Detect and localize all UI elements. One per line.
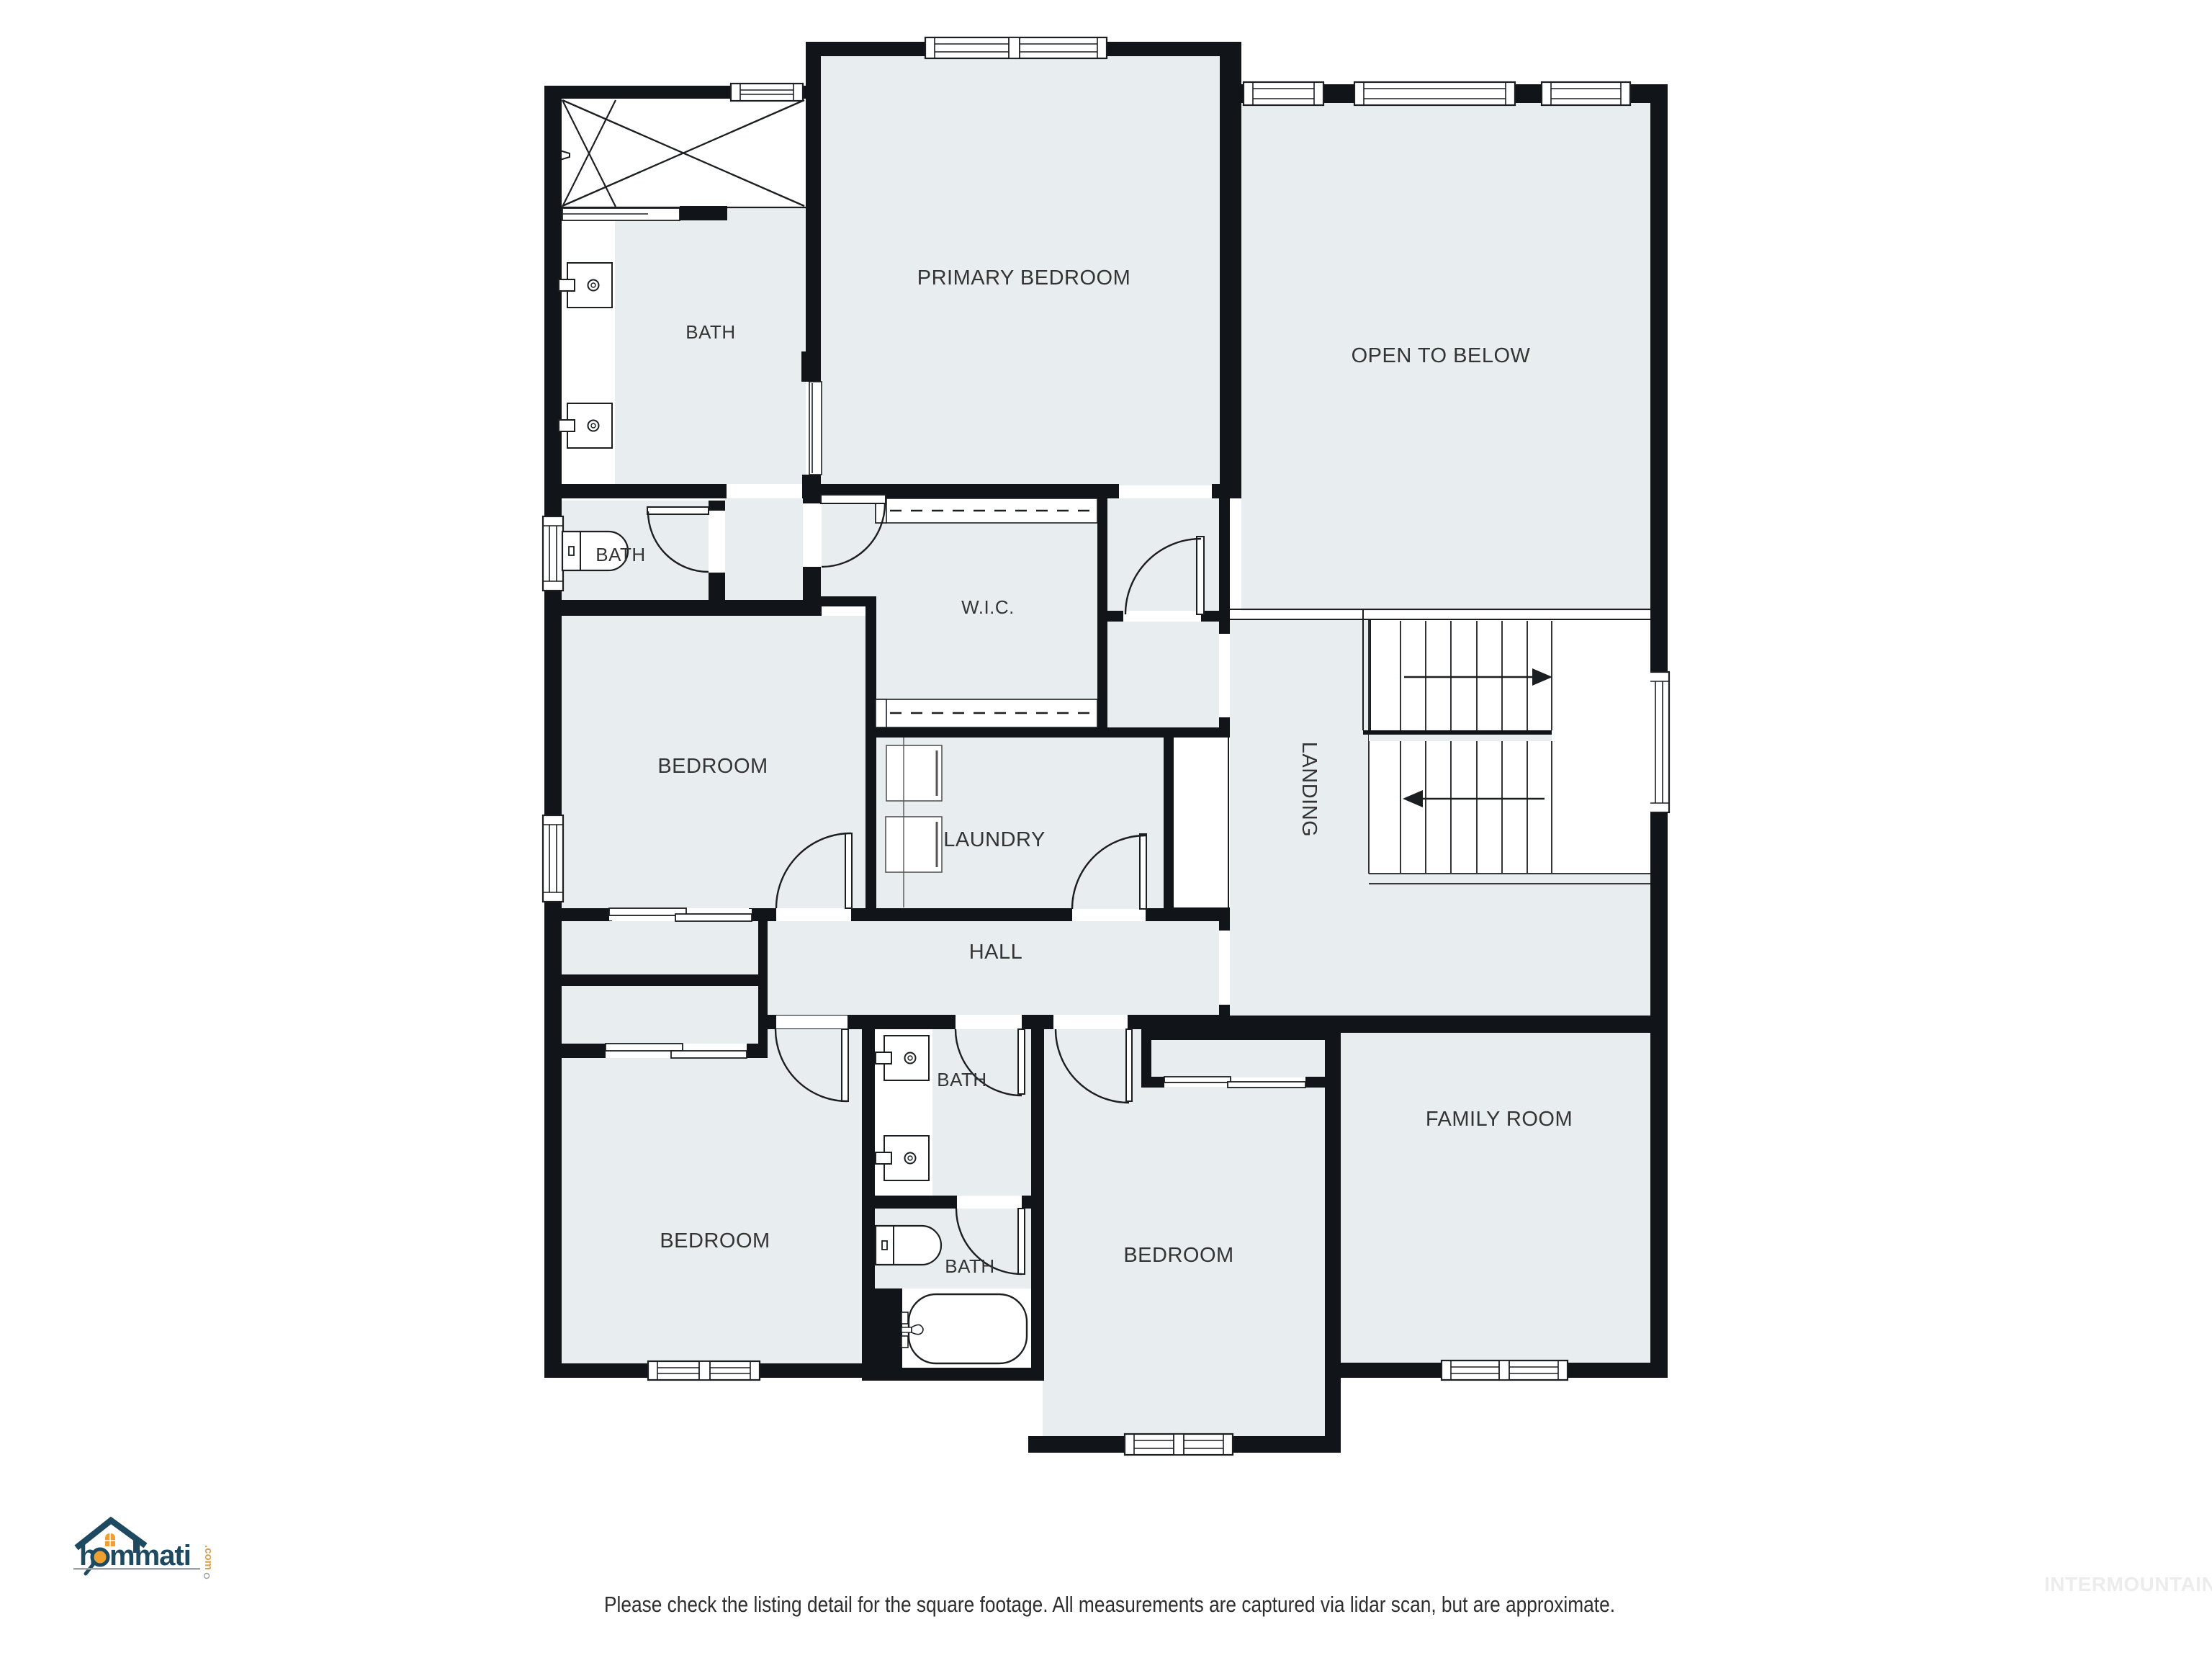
svg-text:BATH: BATH: [685, 321, 735, 343]
svg-text:FAMILY ROOM: FAMILY ROOM: [1426, 1108, 1573, 1131]
svg-text:BEDROOM: BEDROOM: [660, 1229, 770, 1252]
svg-text:.com: .com: [202, 1545, 215, 1570]
svg-text:HALL: HALL: [969, 941, 1023, 964]
svg-text:PRIMARY BEDROOM: PRIMARY BEDROOM: [917, 266, 1130, 290]
svg-text:LAUNDRY: LAUNDRY: [943, 828, 1046, 851]
svg-text:BEDROOM: BEDROOM: [657, 755, 768, 778]
svg-text:INTERMOUNTAIN: INTERMOUNTAIN: [2044, 1573, 2212, 1595]
svg-text:W.I.C.: W.I.C.: [961, 596, 1015, 618]
svg-text:BATH: BATH: [945, 1255, 994, 1277]
svg-text:LANDING: LANDING: [1298, 742, 1321, 837]
svg-text:mmati: mmati: [109, 1540, 191, 1572]
svg-text:BATH: BATH: [937, 1069, 986, 1090]
svg-text:BEDROOM: BEDROOM: [1123, 1244, 1233, 1267]
svg-text:Please check the listing detai: Please check the listing detail for the …: [604, 1592, 1615, 1617]
svg-text:BATH: BATH: [595, 544, 645, 565]
svg-text:OPEN TO BELOW: OPEN TO BELOW: [1352, 344, 1531, 367]
